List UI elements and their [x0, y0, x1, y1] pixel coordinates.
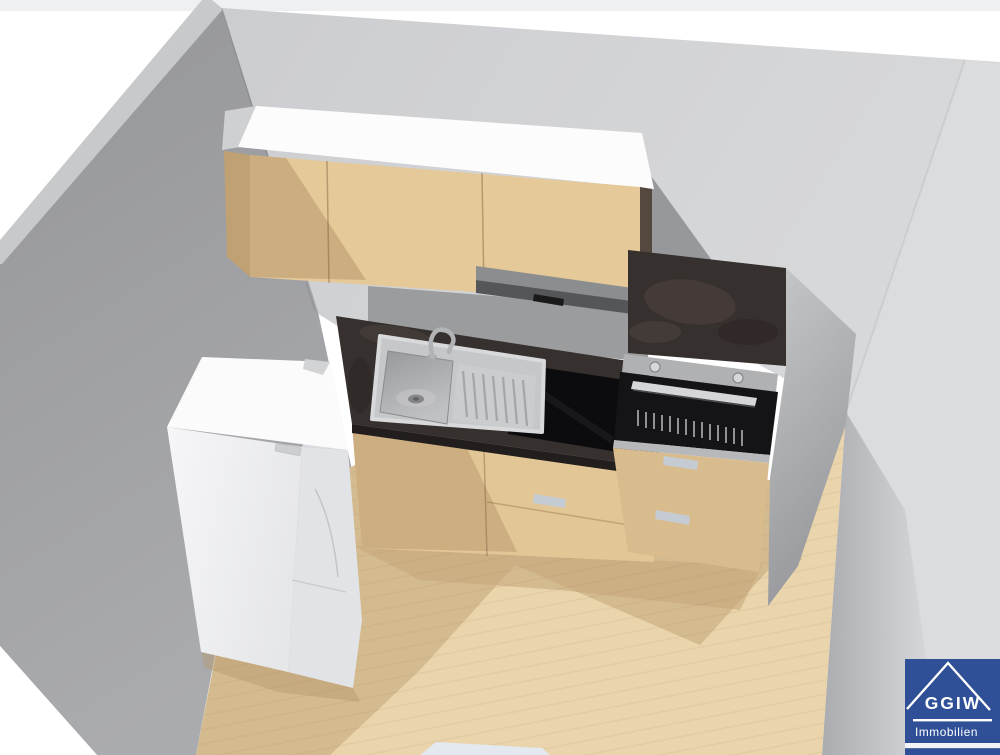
sink-basin — [380, 351, 453, 424]
logo-subtitle-text: Immobilien — [915, 725, 978, 739]
counter-texture-3 — [348, 357, 372, 413]
sink-drain-hole — [413, 397, 419, 401]
kitchen-3d-render: GGIW Immobilien — [0, 0, 1000, 755]
oven-knob-right — [733, 373, 743, 383]
top-edge-strip — [0, 0, 1000, 11]
logo-divider-line — [913, 719, 992, 721]
ggiw-logo: GGIW Immobilien — [905, 659, 1000, 755]
logo-white-band — [905, 743, 1000, 748]
kitchen-scene: GGIW Immobilien — [0, 0, 1000, 755]
slab-texture-2 — [718, 319, 778, 345]
logo-bottom-bar — [905, 748, 1000, 755]
oven-knob-left — [650, 362, 660, 372]
corner-counter-slab — [628, 250, 793, 366]
upper-cabinets — [222, 106, 654, 303]
logo-brand-text: GGIW — [925, 693, 982, 713]
slab-texture-3 — [629, 321, 681, 343]
